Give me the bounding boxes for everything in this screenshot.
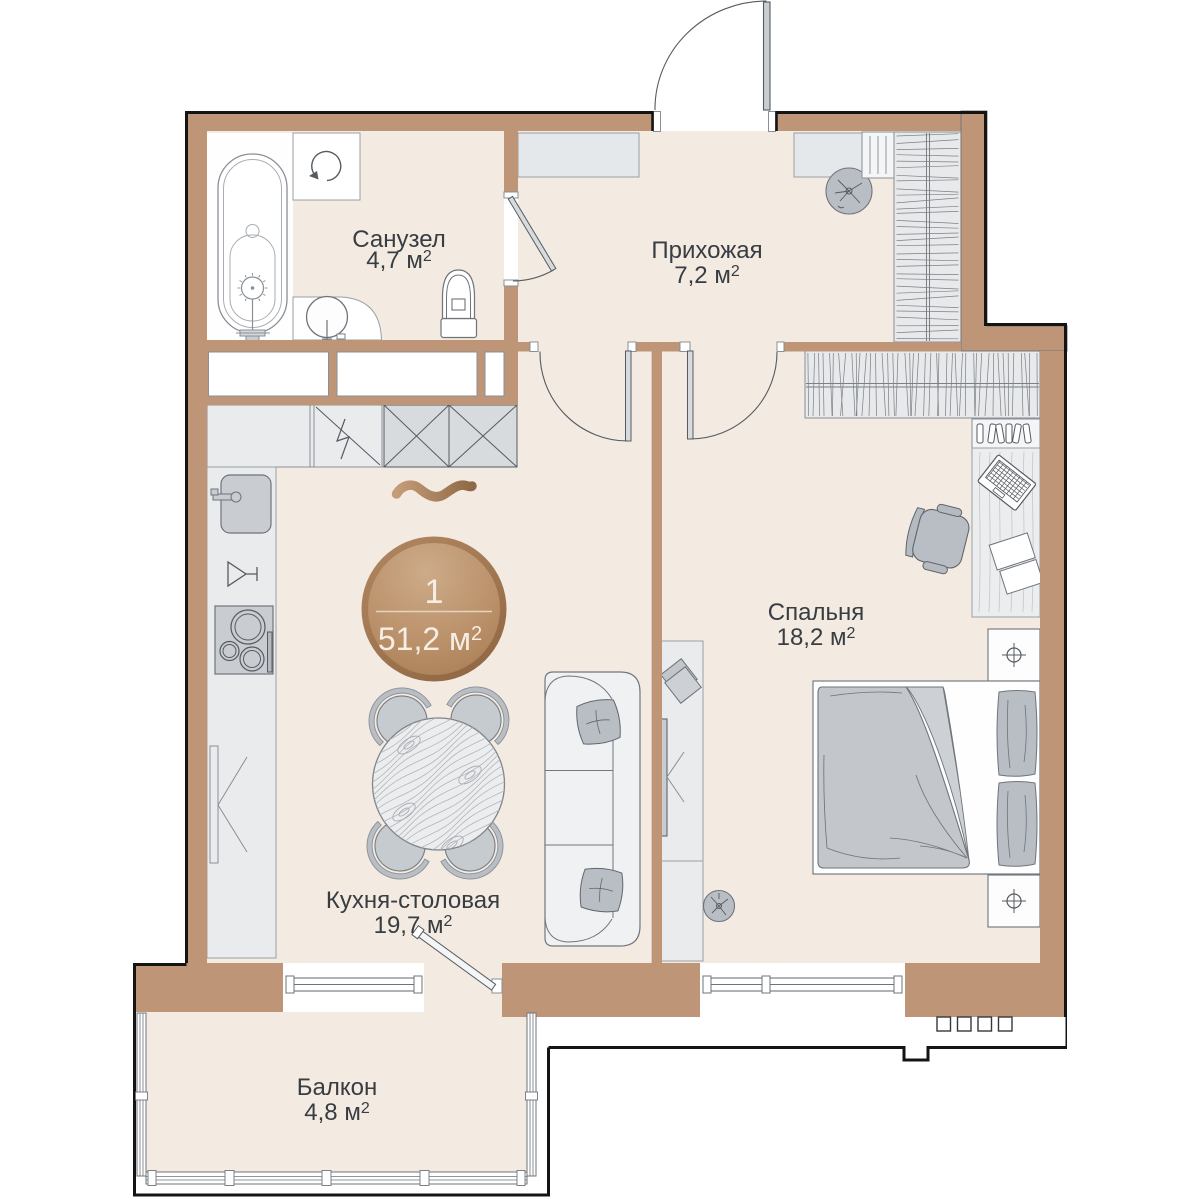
svg-text:Прихожая: Прихожая [651,237,762,264]
svg-text:Кухня-столовая: Кухня-столовая [326,887,500,914]
svg-text:4,8 м2: 4,8 м2 [304,1099,370,1126]
svg-text:4,7 м2: 4,7 м2 [366,247,432,274]
svg-text:Спальня: Спальня [768,599,864,626]
svg-text:51,2 м2: 51,2 м2 [378,621,482,657]
svg-text:7,2 м2: 7,2 м2 [674,262,740,289]
svg-text:1: 1 [425,573,444,611]
svg-text:19,7 м2: 19,7 м2 [374,912,453,939]
svg-text:18,2 м2: 18,2 м2 [777,624,856,651]
svg-text:Балкон: Балкон [297,1074,377,1101]
